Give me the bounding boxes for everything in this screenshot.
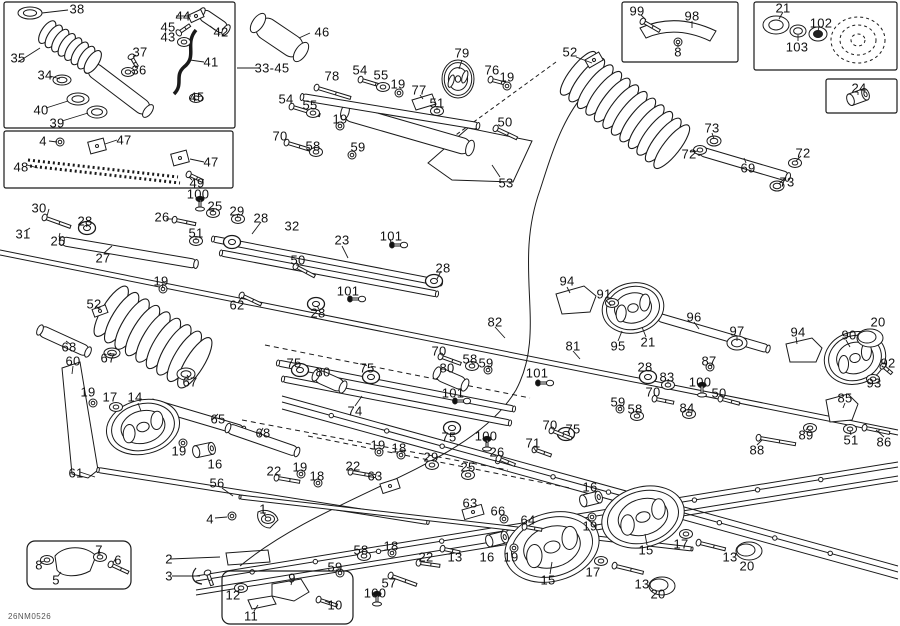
hardware-b xyxy=(437,352,462,367)
hardware-u xyxy=(640,371,657,384)
hardware-q xyxy=(536,380,554,386)
hardware-w xyxy=(310,148,323,157)
hardware-b xyxy=(611,562,644,576)
hardware-dr xyxy=(840,25,876,55)
part-shape xyxy=(248,596,276,609)
hardware-p xyxy=(373,591,382,606)
hardware-n xyxy=(228,512,236,520)
hardware-w xyxy=(606,299,619,308)
hardware-w xyxy=(178,38,191,47)
tube xyxy=(224,422,301,457)
part-shape xyxy=(55,548,96,576)
hardware-s xyxy=(192,442,217,459)
hardware-w xyxy=(207,209,220,218)
hardware-pl xyxy=(462,504,484,519)
hardware-b xyxy=(171,216,196,228)
hardware-n xyxy=(179,439,187,447)
coil-spring xyxy=(88,282,218,393)
tube xyxy=(247,11,311,64)
hardware-n xyxy=(336,122,344,130)
inset-box xyxy=(4,2,235,128)
hardware-w xyxy=(462,471,475,480)
hardware-b xyxy=(387,571,417,588)
hardware-w xyxy=(683,410,696,419)
hardware-u xyxy=(308,298,325,311)
hardware-r xyxy=(53,75,71,85)
hardware-dr xyxy=(851,34,865,46)
hardware-n xyxy=(375,448,383,456)
hardware-n xyxy=(89,399,97,407)
hardware-b xyxy=(283,139,310,153)
hardware-n xyxy=(348,151,356,159)
hardware-w xyxy=(110,403,123,412)
leader-line xyxy=(299,33,310,38)
hardware-dr xyxy=(831,17,885,63)
parts-diagram-page: 26NM0526 3844454342353736413440394533-45… xyxy=(0,0,900,626)
tube xyxy=(697,146,792,182)
part-shape xyxy=(272,579,309,601)
coil-spring xyxy=(35,18,104,76)
leader-line xyxy=(342,246,348,258)
hardware-w xyxy=(789,159,802,168)
coil-spring xyxy=(555,47,695,173)
hardware-n xyxy=(503,82,511,90)
exploded-view-drawing xyxy=(0,0,900,626)
hardware-r xyxy=(177,368,195,380)
part-shape xyxy=(62,362,98,478)
hardware-c xyxy=(736,542,762,560)
hardware-b xyxy=(695,539,726,553)
hardware-b xyxy=(531,445,552,458)
hardware-r xyxy=(18,7,42,19)
hardware-w xyxy=(377,83,390,92)
hardware-n xyxy=(616,405,624,413)
leader-line xyxy=(113,558,116,563)
hardware-r xyxy=(67,93,89,105)
hardware-b xyxy=(175,22,192,37)
hardware-c xyxy=(649,577,675,595)
leader-line xyxy=(618,331,622,341)
leader-line xyxy=(355,396,362,406)
hardware-w xyxy=(358,552,371,561)
hardware-pl xyxy=(380,478,400,493)
hardware-w xyxy=(262,515,275,524)
part-shape xyxy=(308,436,570,488)
tube xyxy=(35,324,93,358)
leader-line xyxy=(215,517,227,518)
hardware-w xyxy=(426,461,439,470)
hardware-w xyxy=(694,146,707,155)
hardware-n xyxy=(159,285,167,293)
tube xyxy=(655,313,771,354)
leader-line xyxy=(62,113,88,121)
hardware-n xyxy=(588,513,596,521)
hardware-u xyxy=(426,275,443,288)
hardware-b xyxy=(315,596,338,609)
hardware-b xyxy=(495,454,516,468)
hardware-n xyxy=(388,549,396,557)
hardware-n xyxy=(297,470,305,478)
hardware-q xyxy=(348,296,366,302)
tube xyxy=(431,366,470,393)
hardware-w xyxy=(122,68,135,77)
leader-line xyxy=(190,159,204,162)
hardware-q xyxy=(390,242,408,248)
hardware-n xyxy=(314,479,322,487)
hardware-w xyxy=(631,412,644,421)
hardware-w xyxy=(595,557,608,566)
leader-line xyxy=(252,222,261,234)
hardware-n xyxy=(395,89,403,97)
hardware-w xyxy=(804,424,817,433)
part-shape xyxy=(786,338,822,362)
hardware-b xyxy=(107,560,130,575)
hardware-r xyxy=(87,106,107,118)
hardware-u xyxy=(363,371,380,384)
idler-wheel xyxy=(442,60,474,98)
hardware-w xyxy=(867,375,880,384)
part-shape xyxy=(240,92,586,566)
leader-line xyxy=(42,10,68,13)
hardware-b xyxy=(127,53,140,68)
hardware-s xyxy=(845,87,871,106)
hardware-b xyxy=(274,474,301,485)
leader-line xyxy=(495,327,505,338)
hardware-pl xyxy=(88,138,107,154)
hardware-be xyxy=(809,27,827,41)
hardware-c xyxy=(857,329,883,347)
idler-wheel xyxy=(597,277,668,339)
leader-line xyxy=(18,48,40,62)
hardware-n xyxy=(336,569,344,577)
hardware-n xyxy=(397,451,405,459)
hardware-r xyxy=(104,348,120,358)
part-shape xyxy=(226,550,270,565)
hardware-r xyxy=(707,136,721,146)
hardware-w xyxy=(307,109,320,118)
hardware-r xyxy=(770,181,784,191)
hardware-b xyxy=(651,395,674,406)
hardware-w xyxy=(466,362,479,371)
leader-line xyxy=(46,101,68,108)
hardware-w xyxy=(232,215,245,224)
hardware-p xyxy=(196,196,205,211)
hardware-u xyxy=(292,364,309,377)
part-shape xyxy=(556,286,596,314)
leader-line xyxy=(105,140,117,144)
hardware-b xyxy=(41,213,71,230)
leader-line xyxy=(59,233,60,237)
hardware-w xyxy=(190,94,203,103)
hardware-w xyxy=(235,584,248,593)
hardware-b xyxy=(348,468,377,480)
hardware-b xyxy=(879,362,894,376)
hardware-p xyxy=(483,436,492,451)
hardware-w xyxy=(41,556,54,565)
leader-line xyxy=(573,351,580,359)
leader-line xyxy=(190,60,204,62)
hardware-s xyxy=(578,490,603,507)
hardware-r xyxy=(763,16,789,34)
hardware-u xyxy=(79,222,96,235)
hardware-n xyxy=(510,544,518,552)
hardware-pl xyxy=(171,150,190,166)
hardware-u xyxy=(444,422,461,435)
leader-line xyxy=(47,209,49,216)
hardware-n xyxy=(484,366,492,374)
tube xyxy=(59,236,199,269)
hardware-n xyxy=(56,138,64,146)
hardware-n xyxy=(500,515,508,523)
hardware-w xyxy=(680,530,693,539)
part-shape xyxy=(826,394,858,422)
hardware-b xyxy=(416,559,441,569)
hardware-u xyxy=(224,236,241,249)
leader-line xyxy=(170,557,220,559)
leader-line xyxy=(27,228,30,230)
hardware-b xyxy=(185,170,204,184)
